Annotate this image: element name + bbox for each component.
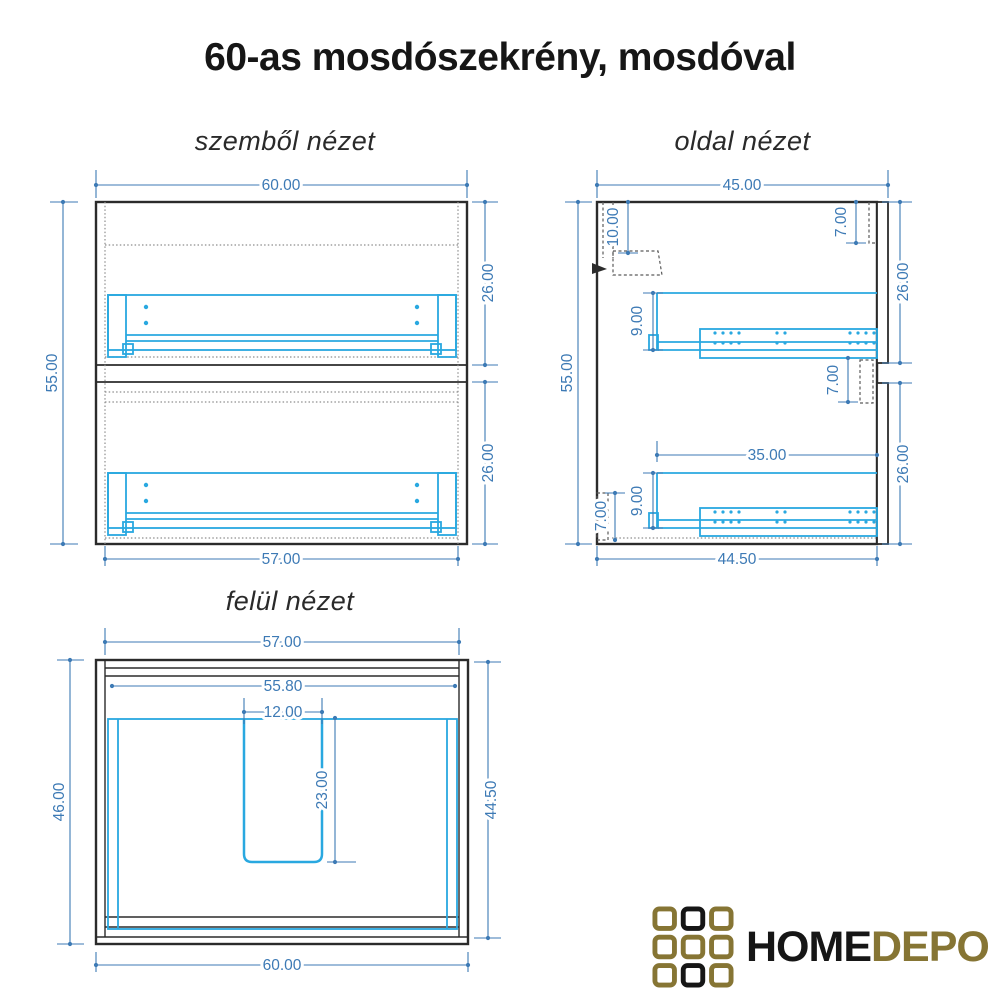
homedepo-logo: HOMEDEPO [652, 906, 989, 988]
dim-label: 57.00 [263, 634, 302, 651]
technical-drawing-page: 60-as mosdószekrény, mosdóval szemből né… [0, 0, 1000, 1000]
side-view-drawing: 45.00 55.00 10.00 7.00 9.00 [530, 150, 1000, 580]
dim-label: 44.50 [718, 551, 757, 568]
dim-label: 60.00 [262, 177, 301, 194]
front-cabinet-outline [96, 202, 467, 544]
top-dim-depth-right: 44.50 [474, 660, 501, 940]
top-cabinet-outline [96, 660, 468, 944]
top-dim-width-top: 57.00 [103, 628, 461, 655]
dim-label: 9.00 [629, 486, 646, 517]
dim-label: 26.00 [895, 444, 912, 483]
side-dim-depth-top: 45.00 [595, 170, 890, 198]
logo-depo-text: DEPO [871, 923, 989, 971]
dim-label: 26.00 [895, 262, 912, 301]
dim-label: 26.00 [480, 443, 497, 482]
dim-label: 12.00 [264, 704, 303, 721]
dim-label: 7.00 [833, 207, 850, 238]
dim-label: 55.80 [264, 678, 303, 695]
page-title: 60-as mosdószekrény, mosdóval [0, 36, 1000, 80]
front-view-drawing: 60.00 55.00 26.00 26.00 [40, 150, 540, 580]
dim-label: 7.00 [825, 365, 842, 396]
logo-grid-icon [652, 906, 734, 988]
dim-label: 9.00 [629, 306, 646, 337]
top-dim-width-bottom: 60.00 [94, 952, 470, 974]
dim-label: 45.00 [723, 177, 762, 194]
dim-label: 57.00 [262, 551, 301, 568]
front-dim-drawer-top: 26.00 [472, 200, 498, 367]
dim-label: 44.50 [483, 780, 500, 819]
logo-home-text: HOME [746, 923, 871, 971]
dim-label: 10.00 [605, 207, 622, 246]
front-dim-height: 55.00 [44, 200, 78, 546]
top-view-drawing: 57.00 55.80 12.00 23.00 46.00 [40, 600, 540, 990]
dim-label: 46.00 [51, 782, 68, 821]
side-dim-height: 55.00 [559, 200, 592, 546]
dim-label: 26.00 [480, 263, 497, 302]
dim-label: 55.00 [44, 353, 61, 392]
logo-wordmark: HOMEDEPO [746, 923, 989, 972]
dim-label: 7.00 [593, 501, 610, 532]
dim-label: 35.00 [748, 447, 787, 464]
front-dim-drawer-bottom: 26.00 [472, 380, 498, 546]
dim-label: 55.00 [559, 353, 576, 392]
dim-label: 60.00 [263, 957, 302, 974]
side-dim-depth-bottom: 44.50 [595, 546, 879, 568]
front-dim-width-top: 60.00 [94, 170, 469, 198]
dim-label: 23.00 [314, 770, 331, 809]
top-dim-depth-left: 46.00 [51, 658, 84, 946]
front-dim-width-bottom: 57.00 [103, 546, 460, 568]
